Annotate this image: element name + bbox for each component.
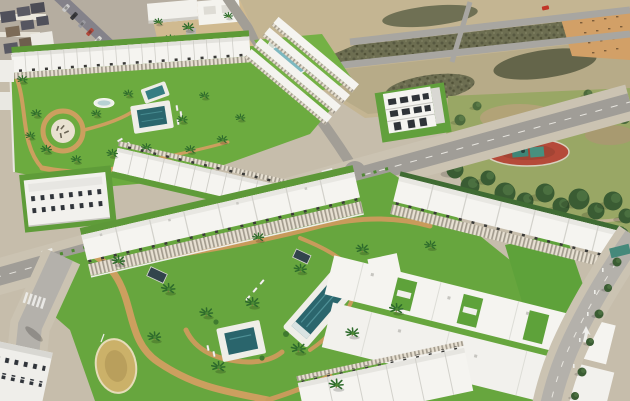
aerial-render	[0, 0, 630, 401]
scene-canvas	[0, 0, 630, 401]
sports-court-2	[530, 146, 545, 157]
edge-building-1	[0, 60, 14, 82]
splash-pad-water	[98, 100, 111, 105]
apartment-block	[19, 165, 117, 232]
edge-building-2	[0, 92, 12, 110]
round-plaza	[51, 119, 75, 143]
